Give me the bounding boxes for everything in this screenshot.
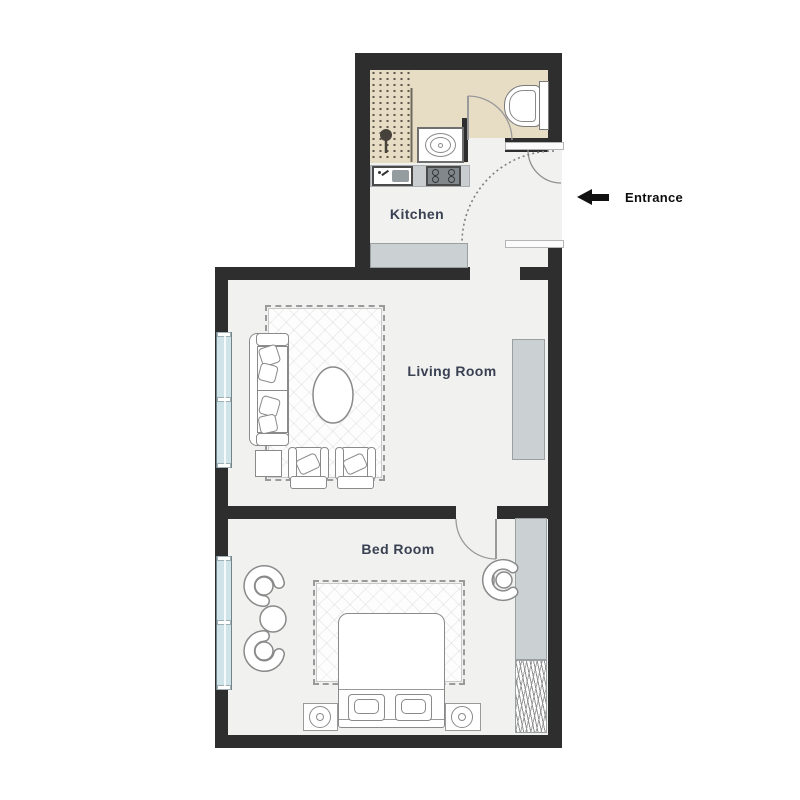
entrance-label: Entrance [625, 190, 683, 205]
washing-machine [417, 127, 464, 163]
kitchen-stove [426, 166, 461, 186]
tv-console [512, 339, 545, 460]
wall-top [355, 53, 562, 70]
wall-living-top [215, 267, 470, 280]
bed-mattress-line [339, 689, 444, 690]
entrance-arrow-icon [577, 189, 609, 205]
bed-pillow [395, 694, 432, 721]
bed-pillow [348, 694, 385, 721]
wall-right-upper [548, 53, 562, 146]
bed-pillow-inner [354, 699, 379, 714]
lamp-icon [309, 706, 331, 728]
bedroom-window [216, 556, 232, 690]
washer-drum-center [438, 143, 443, 148]
armchair-seat-cushion [337, 476, 374, 489]
floor-passage-hall-living [470, 267, 520, 280]
sofa-pillow [257, 413, 278, 434]
living-room-label: Living Room [407, 363, 496, 379]
stove-burner [432, 176, 439, 183]
sofa [249, 333, 289, 446]
kitchen-label: Kitchen [390, 206, 444, 222]
wall-top-left [355, 53, 370, 280]
side-table [255, 450, 282, 477]
armchair [288, 447, 329, 489]
window-mullion [224, 333, 226, 467]
wardrobe [515, 518, 547, 660]
nightstand-left [303, 703, 338, 731]
floor-entrance-gap [548, 146, 562, 243]
wardrobe-hanging-clothes [515, 660, 547, 733]
living-room-window [216, 332, 232, 468]
wall-bottom [215, 735, 562, 748]
toilet-bowl-inner [509, 90, 536, 122]
bed-pillow-inner [401, 699, 426, 714]
bed [338, 613, 445, 728]
wall-living-top-stub [520, 267, 548, 280]
wall-divider-living-bedroom [228, 506, 456, 519]
stove-burner [448, 176, 455, 183]
toilet [504, 85, 541, 127]
floor-plan: Kitchen Living Room Bed Room Entrance [0, 0, 800, 800]
entrance-annotation: Entrance [577, 189, 683, 205]
stove-burner [448, 169, 455, 176]
kitchen-sink [372, 166, 413, 186]
arrow-head [577, 189, 592, 205]
window-mullion [224, 557, 226, 689]
entrance-threshold-bottom [505, 240, 564, 248]
bed-room-label: Bed Room [361, 541, 434, 557]
kitchen-island [370, 243, 468, 268]
toilet-tank [539, 81, 549, 130]
armchair [335, 447, 376, 489]
nightstand-right [445, 703, 481, 731]
entrance-threshold-top [505, 142, 564, 150]
sofa-cushion-divider [257, 390, 288, 391]
shower-area [370, 70, 411, 162]
sink-basin [392, 170, 409, 182]
stove-burner [432, 169, 439, 176]
lamp-icon [451, 706, 473, 728]
sofa-armrest-bottom [256, 433, 289, 446]
faucet-spout [381, 170, 388, 176]
arrow-shaft [592, 194, 609, 201]
wall-right-lower [548, 243, 562, 748]
armchair-seat-cushion [290, 476, 327, 489]
